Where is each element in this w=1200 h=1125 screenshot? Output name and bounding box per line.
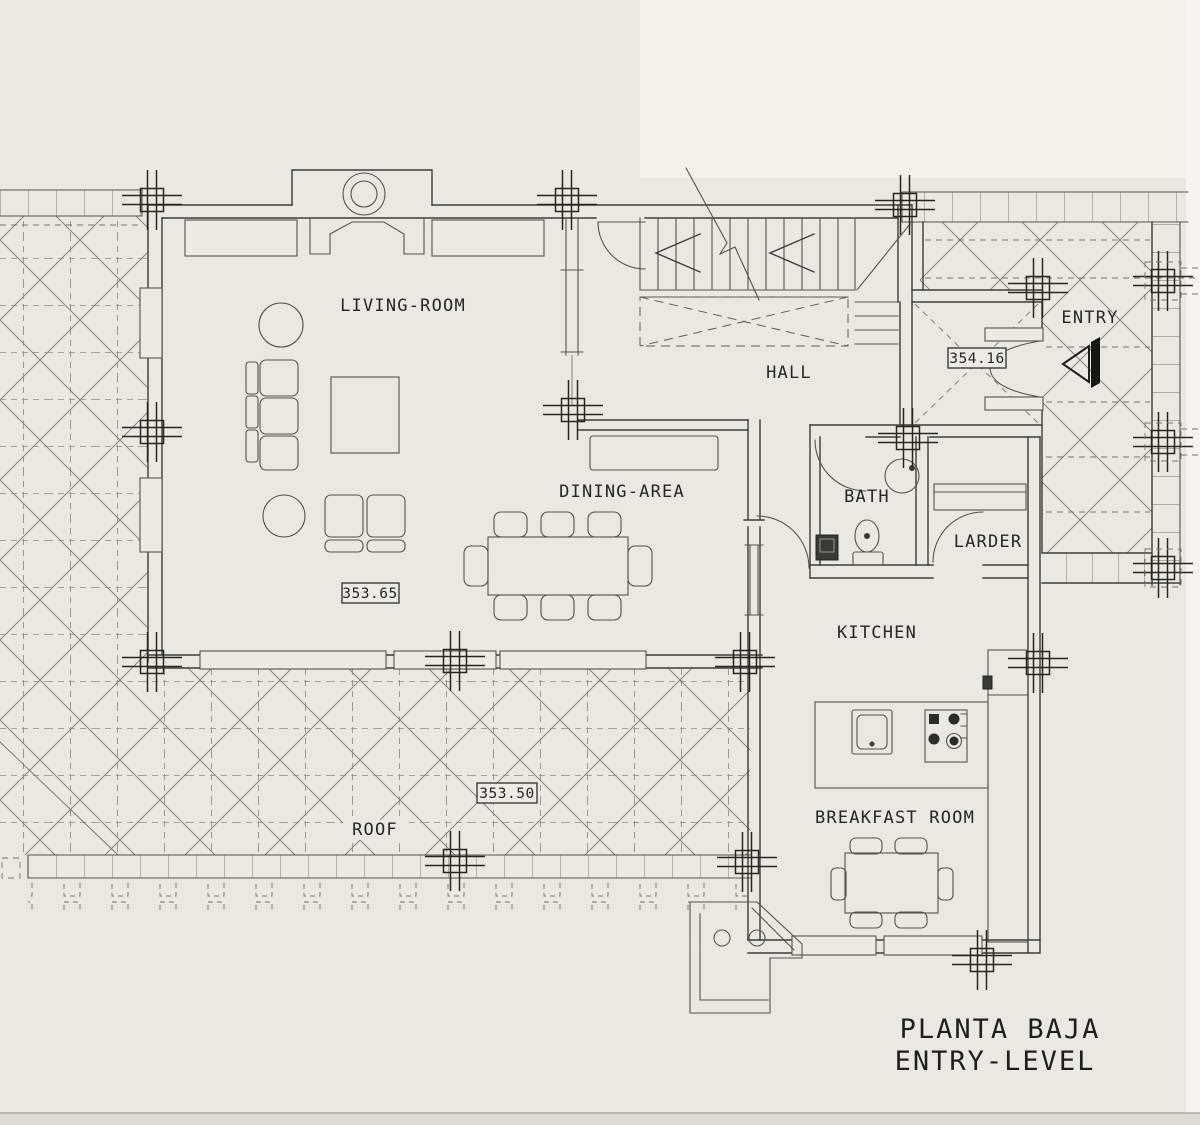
entry-door-jamb-top [985,328,1043,341]
toilet-drain [864,533,870,539]
window-bottom-2 [394,651,496,669]
sink-drain [870,742,875,747]
larder-label: LARDER [954,532,1023,552]
burner-2 [949,714,960,725]
counter-appliance [983,676,992,689]
title-block: PLANTA BAJA ENTRY-LEVEL [895,1014,1101,1077]
breakfast-room-label: BREAKFAST ROOM [815,808,975,828]
floor-plan-drawing: LIVING-ROOM 353.65 HALL 354.16 ENTRY [0,0,1200,1125]
window-left-2 [140,478,162,552]
tile-band-porch-bottom [1042,553,1152,583]
entry-door-jamb-bottom [985,397,1043,410]
window-top-1 [185,220,297,256]
window-bottom-1 [200,651,386,669]
level-entry: 354.16 [949,351,1004,367]
breakfast-window-2 [884,936,982,955]
paper-highlight-right [1186,0,1200,1125]
burner-4 [950,737,959,746]
porch-hatch-top [920,222,1152,290]
window-left-1 [140,288,162,358]
title-line-1: PLANTA BAJA [900,1014,1101,1045]
burner-3 [929,734,940,745]
roof-label: ROOF [352,820,398,840]
paper-highlight-top [640,0,1200,178]
porch-hatch-right [1042,290,1152,553]
roof-dashgrid-bottom [148,668,750,855]
roof-dashgrid-left [0,216,148,855]
burner-1 [929,714,939,724]
tile-band-bottom [28,855,750,878]
bath-label: BATH [844,487,890,507]
dining-area-label: DINING-AREA [559,482,685,502]
window-top-2 [432,220,544,256]
title-line-2: ENTRY-LEVEL [895,1046,1096,1077]
kitchen-label: KITCHEN [837,623,917,643]
breakfast-window-1 [792,936,876,955]
entry-label: ENTRY [1061,308,1118,328]
scan-edge [0,1113,1200,1125]
floor-plan-page: LIVING-ROOM 353.65 HALL 354.16 ENTRY [0,0,1200,1125]
level-roof: 353.50 [479,786,534,802]
entry-arrow-bar-icon [1091,337,1100,388]
living-room-label: LIVING-ROOM [340,296,466,316]
post-row-bottom [28,880,750,910]
tile-band-top-left [0,190,142,216]
hall-label: HALL [766,363,812,383]
tile-band-top-right [902,192,1188,222]
window-bottom-3 [500,651,646,669]
level-living: 353.65 [342,586,397,602]
